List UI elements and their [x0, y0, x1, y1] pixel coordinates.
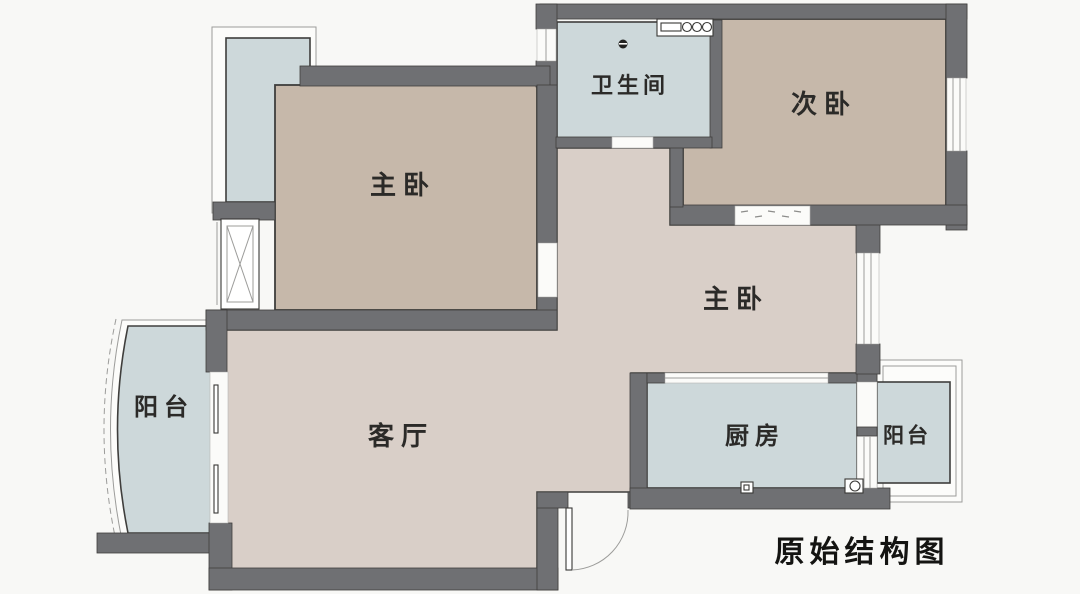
room-label-master-bedroom: 主卧	[370, 173, 436, 199]
floor-drain	[619, 40, 628, 49]
balcony-left-floor	[118, 326, 213, 533]
room-label-bathroom: 卫生间	[591, 75, 669, 97]
wall-segment	[856, 223, 880, 253]
wall-segment	[300, 66, 550, 86]
wall-segment	[828, 373, 858, 383]
master-bedroom-door-opening	[538, 243, 557, 297]
balcony-sliding-door	[210, 372, 228, 523]
kitchen-top-window	[665, 373, 828, 383]
bathroom-door-opening	[612, 137, 653, 148]
kitchen-drain-symbol	[845, 479, 863, 493]
wall-segment	[670, 147, 683, 207]
room-label-second-bedroom: 次卧	[791, 92, 857, 118]
wall-segment	[946, 4, 967, 78]
wall-segment	[537, 85, 557, 243]
wall-segment	[213, 202, 275, 220]
wall-segment	[540, 4, 967, 19]
wall-segment	[647, 373, 665, 383]
hall-right-window	[857, 253, 879, 344]
second-bedroom-opening	[735, 206, 810, 225]
duct-shaft	[217, 219, 259, 309]
room-label-kitchen: 厨房	[725, 425, 785, 449]
bathroom-left-window	[537, 29, 556, 61]
wall-segment	[97, 533, 214, 553]
room-label-balcony-left: 阳台	[134, 396, 194, 420]
room-label-inner-master-bedroom: 主卧	[703, 287, 769, 313]
entry-door-swing-arc	[572, 510, 628, 570]
entry-door-leaf	[566, 508, 572, 570]
floor-plan: 主卧 卫生间 次卧 主卧 客厅 厨房 阳台 阳台 原始结构图	[0, 0, 1080, 594]
wall-segment	[209, 568, 558, 590]
kitchen-balcony-door-window	[857, 382, 877, 488]
wall-segment	[710, 20, 722, 148]
kitchen-gas-symbol	[741, 482, 753, 493]
wall-segment	[537, 492, 568, 508]
entry-door	[566, 508, 628, 570]
floorplan-svg	[0, 0, 1080, 594]
plan-title: 原始结构图	[775, 527, 950, 571]
room-label-living-room: 客厅	[368, 424, 434, 450]
room-label-balcony-right: 阳台	[883, 426, 931, 447]
second-bedroom-window	[947, 78, 966, 151]
wall-segment	[206, 310, 557, 330]
wall-segment	[856, 344, 880, 374]
wall-segment	[670, 205, 967, 225]
wall-segment	[536, 4, 557, 29]
wall-segment	[206, 310, 227, 372]
bathroom-vanity	[657, 19, 713, 36]
